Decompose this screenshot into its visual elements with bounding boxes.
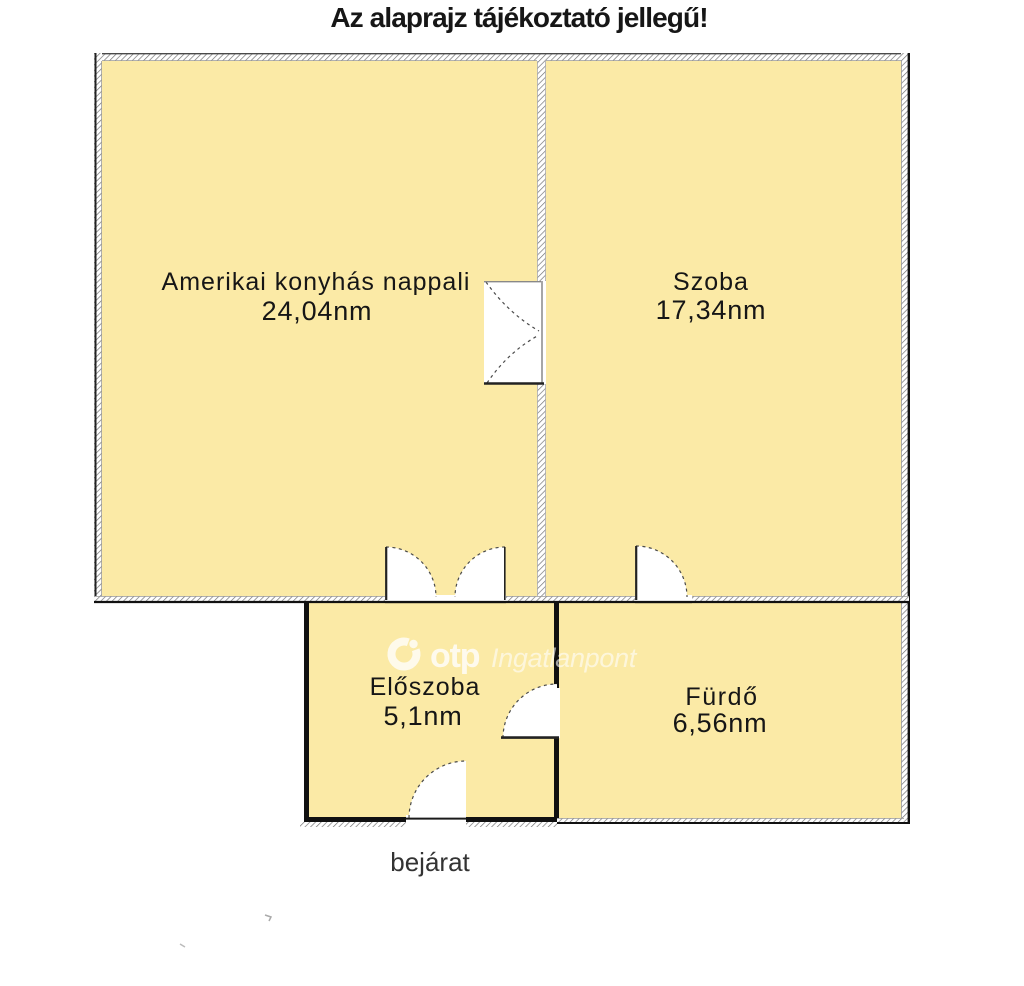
svg-text:Fürdő: Fürdő (685, 683, 758, 711)
svg-text:Szoba: Szoba (673, 268, 749, 296)
svg-text:24,04nm: 24,04nm (262, 296, 373, 326)
svg-text:bejárat: bejárat (390, 847, 470, 877)
svg-text:Az alaprajz tájékoztató jelleg: Az alaprajz tájékoztató jellegű! (330, 2, 707, 33)
svg-text:5,1nm: 5,1nm (383, 701, 462, 731)
svg-text:Ingatlanpont: Ingatlanpont (491, 643, 638, 673)
svg-text:otp: otp (430, 637, 480, 675)
svg-text:6,56nm: 6,56nm (673, 708, 768, 738)
svg-text:17,34nm: 17,34nm (656, 295, 767, 325)
svg-text:Amerikai konyhás nappali: Amerikai konyhás nappali (162, 268, 471, 296)
svg-text:Előszoba: Előszoba (370, 673, 481, 701)
